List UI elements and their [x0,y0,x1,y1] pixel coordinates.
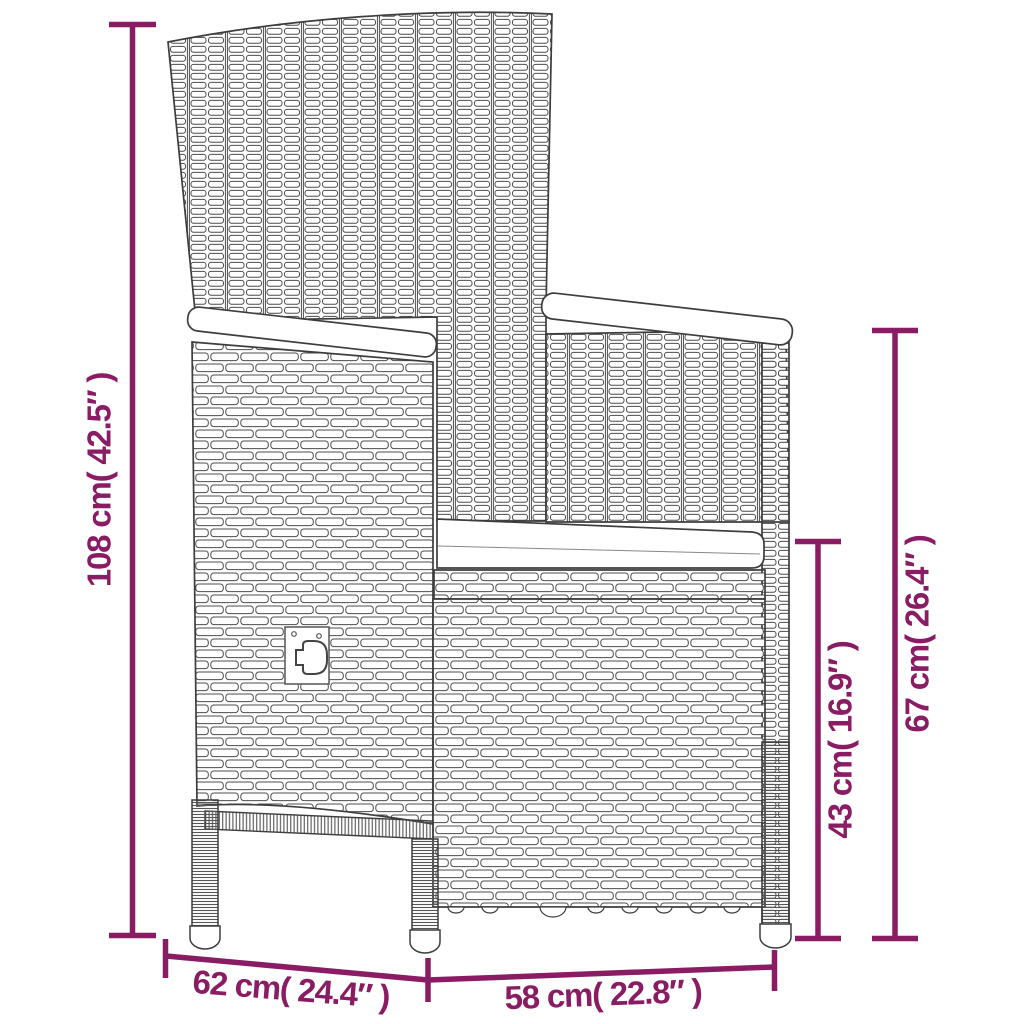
chair-right-panel [546,330,789,522]
chair-left-side-panel [192,342,433,824]
chair-illustration [0,0,1024,1024]
chair-front-apron [433,599,765,907]
dimension-label-total-height: 108 cm( 42.5″ ) [83,373,116,587]
chair-recline-knob [285,627,329,684]
chair-parts [168,12,794,953]
dimension-label-width: 58 cm( 22.8″ ) [504,974,702,1015]
chair-apron-scallops [448,907,740,917]
chair-seat-band [434,570,765,599]
dimension-diagram: 108 cm( 42.5″ ) 67 cm( 26.4″ ) 43 cm( 16… [0,0,1024,1024]
dimension-label-back-height: 67 cm( 26.4″ ) [901,535,934,732]
seat-cushion [437,519,764,568]
dimension-label-seat-height: 43 cm( 16.9″ ) [824,641,857,838]
